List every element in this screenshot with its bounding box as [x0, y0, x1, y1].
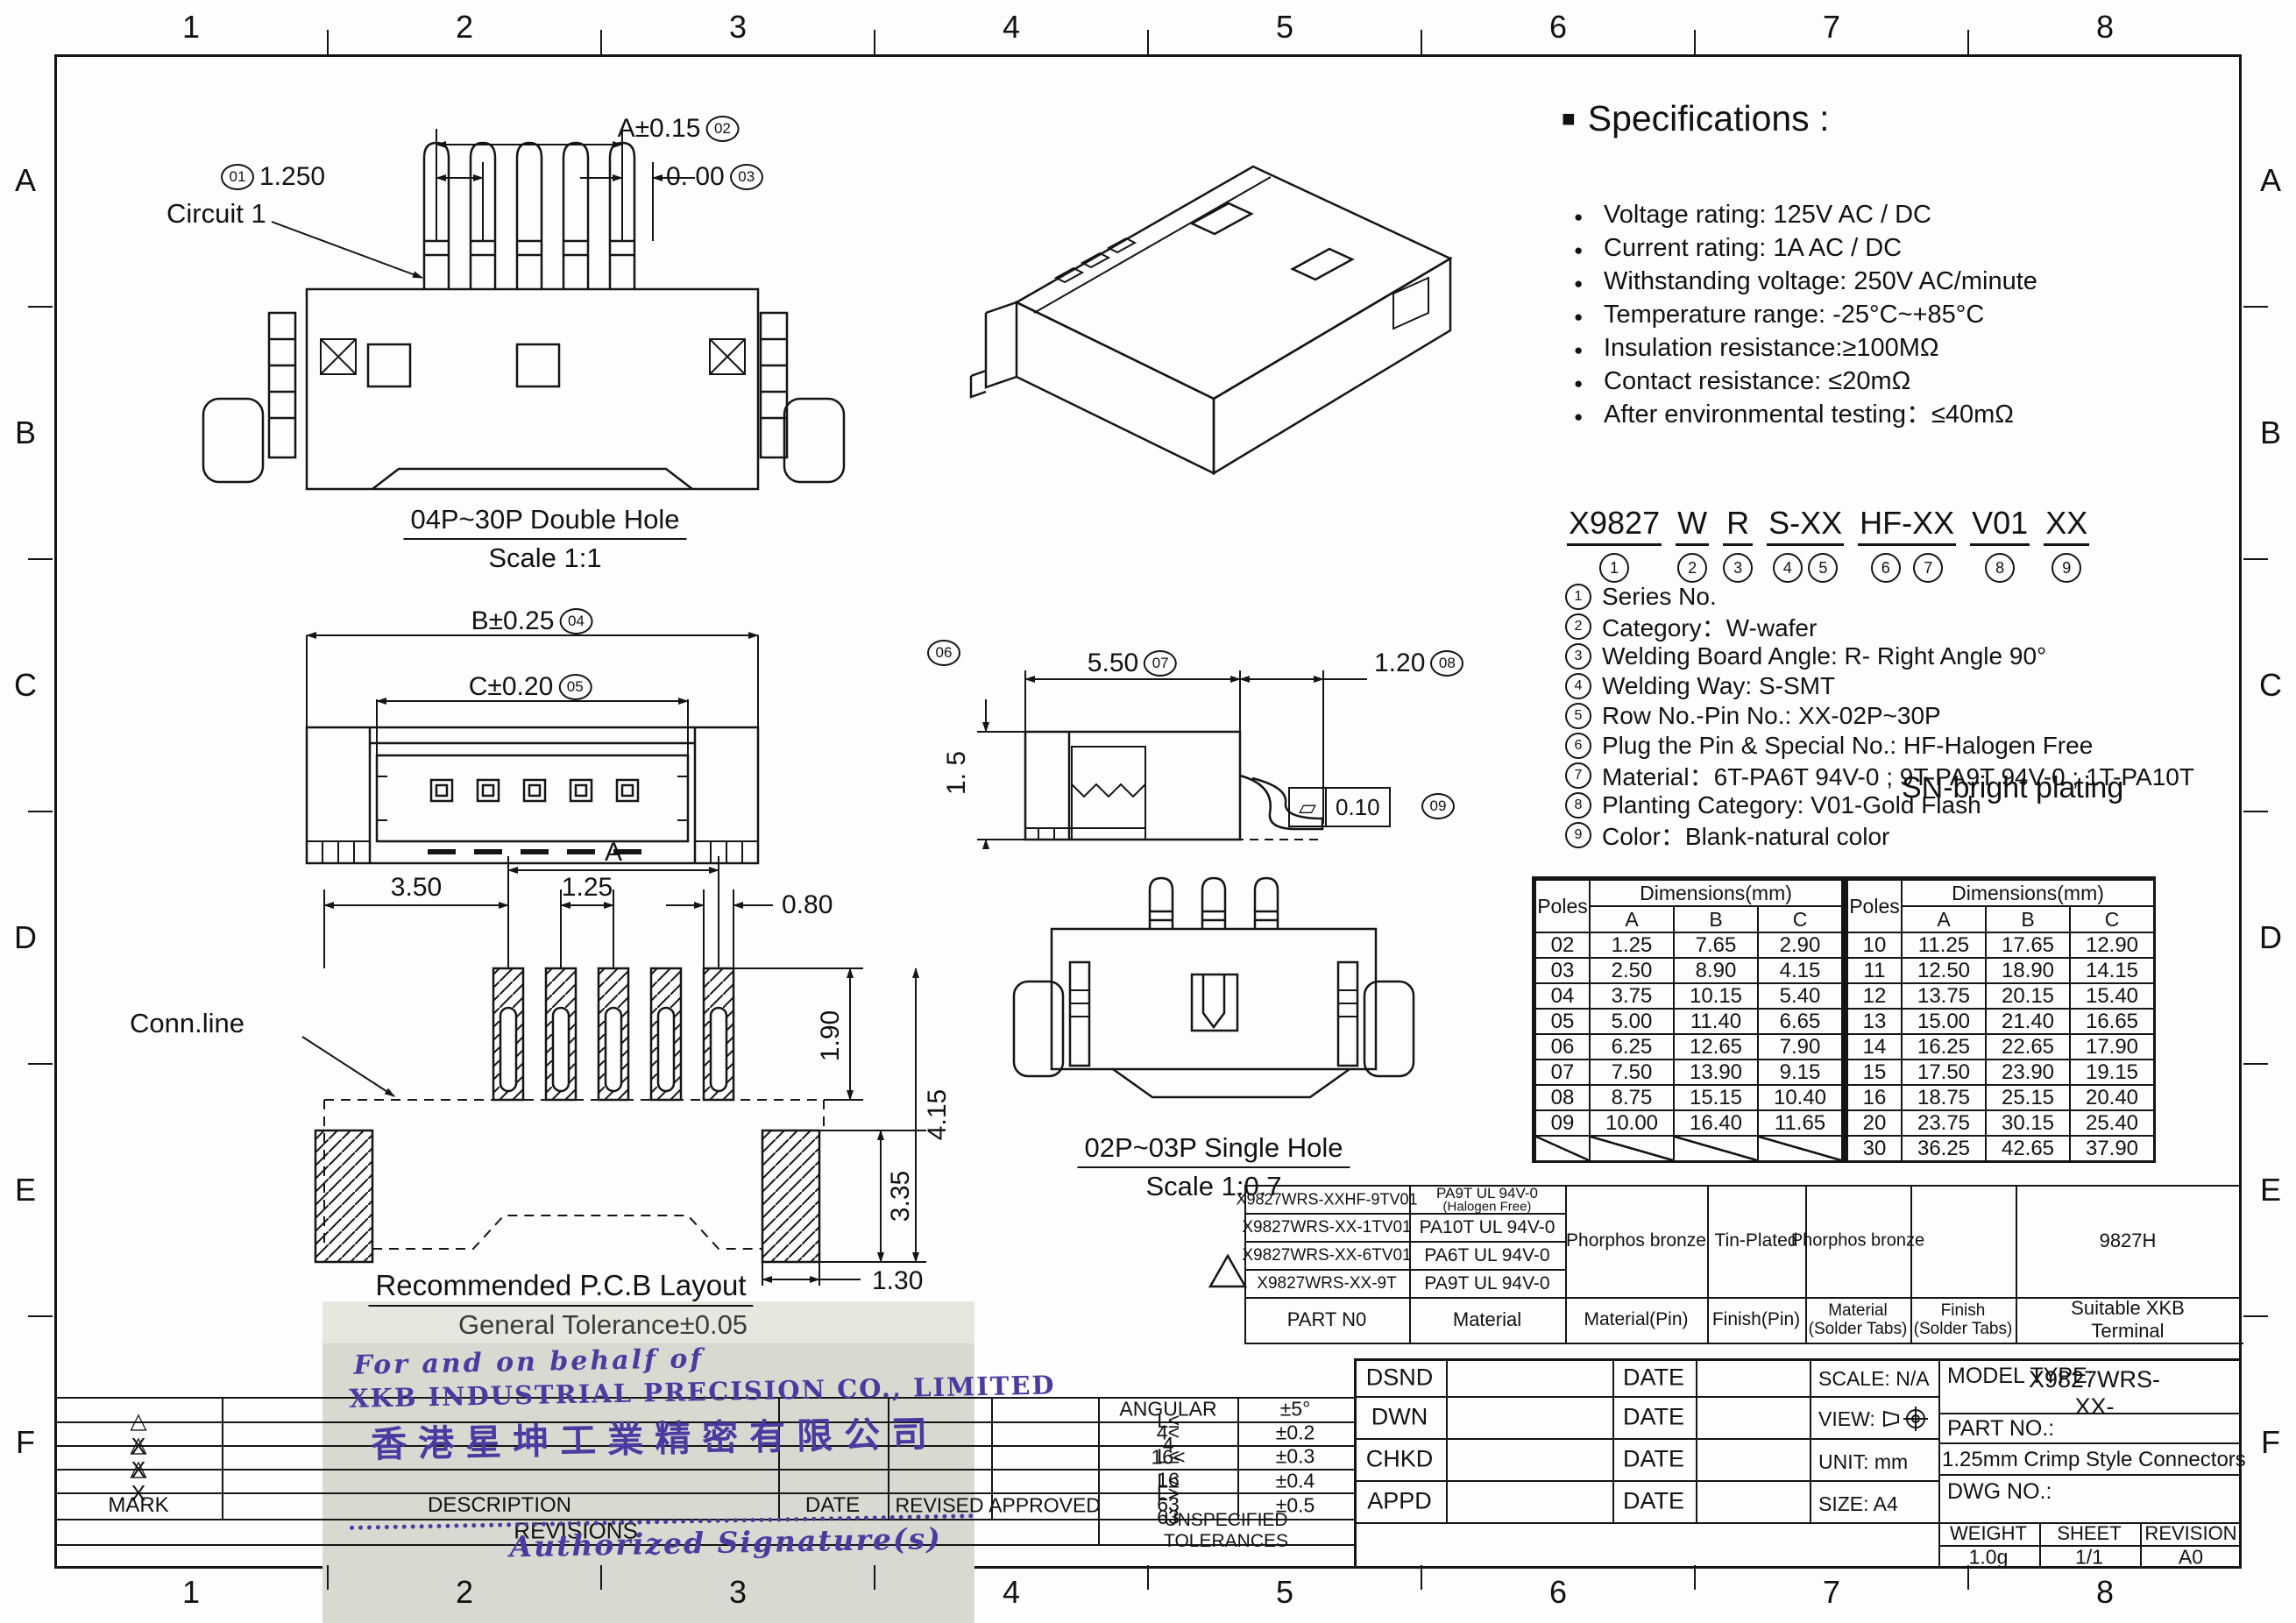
- col-header: Suitable XKB Terminal: [2044, 1297, 2212, 1343]
- grid-row-label: A: [5, 54, 46, 307]
- table-cell: 08: [1534, 1084, 1589, 1109]
- grid-col-label: 7: [1695, 7, 1968, 47]
- view-label: VIEW:: [1818, 1407, 1875, 1431]
- table-cell: 16.65: [2069, 1008, 2153, 1033]
- note-ref-bubble: 8: [1565, 792, 1591, 819]
- specifications-list: Voltage rating: 125V AC / DCCurrent rati…: [1569, 198, 2147, 431]
- pcb-tolerance-note: General Tolerance±0.05: [458, 1309, 748, 1341]
- col-header: B: [1985, 905, 2069, 932]
- code-segment: S-XX 4 5: [1767, 505, 1844, 583]
- col-header: MARK: [108, 1493, 168, 1518]
- table-cell: 25.15: [1985, 1084, 2069, 1109]
- table-cell: 5.40: [1757, 982, 1841, 1008]
- code-segment-text: V01: [1970, 505, 2030, 546]
- col-header: PART N0: [1287, 1308, 1366, 1331]
- part-number-code: X9827 1 W 2 R 3 S-XX 4 5 HF-XX 6 7 V01: [1567, 505, 2089, 583]
- code-segment: R 3: [1723, 505, 1753, 583]
- grid-col-label: 1: [54, 7, 328, 47]
- table-cell: 20.15: [1985, 982, 2069, 1008]
- dim-text: 1.250: [259, 162, 325, 192]
- dim-ref-bubble: 07: [1144, 650, 1177, 677]
- single-hole-caption: 02P~03P Single Hole Scale 1:0.7: [1077, 1132, 1350, 1202]
- divider-line: [1805, 1185, 1807, 1343]
- table-cell: 6.25: [1589, 1033, 1673, 1059]
- table-cell: 16.40: [1673, 1109, 1757, 1135]
- size-value: SIZE: A4: [1818, 1492, 1898, 1516]
- divider-line: [1354, 1480, 1938, 1482]
- table-cell: PA6T UL 94V-0: [1424, 1245, 1549, 1266]
- dim-350-label: 3.50: [391, 873, 442, 903]
- dim-125-label: 1.25: [562, 873, 613, 903]
- divider-line: [1565, 1185, 1567, 1343]
- code-ref-bubble: 2: [1677, 553, 1707, 583]
- table-cell: 04: [1534, 982, 1589, 1008]
- col-header: C: [2069, 905, 2153, 932]
- flatness-icon: ▱: [1290, 789, 1325, 826]
- table-cell: 15.40: [2069, 982, 2153, 1008]
- note-ref-bubble: 9: [1565, 822, 1591, 848]
- table-cell: 10.00: [1589, 1109, 1673, 1135]
- grid-row-label: B: [2250, 307, 2291, 559]
- divider-line: [1938, 1474, 2242, 1476]
- code-segment: X9827 1: [1567, 505, 1662, 583]
- flatness-frame: ▱ 0.10: [1288, 787, 1391, 827]
- table-cell: 18.90: [1985, 957, 2069, 982]
- table-cell: 3.75: [1589, 982, 1673, 1008]
- col-header: APPROVED: [989, 1494, 1101, 1518]
- col-header: Dimensions(mm): [1589, 879, 1841, 905]
- note-ref-bubble: 7: [1565, 762, 1591, 789]
- dim-b-label: B±0.25 04: [471, 606, 593, 636]
- dim-130-label: 1.30: [872, 1266, 923, 1296]
- dim-190-label: 1.90: [816, 1010, 846, 1061]
- date-label: DATE: [1623, 1404, 1684, 1431]
- table-cell: 16.25: [1901, 1033, 1985, 1059]
- grid-row-label: C: [2250, 559, 2291, 811]
- table-cell: 14.15: [2069, 957, 2153, 982]
- table-cell: PA9T UL 94V-0: [1424, 1273, 1549, 1294]
- table-cell: 06: [1534, 1033, 1589, 1059]
- table-cell: 4.15: [1757, 957, 1841, 982]
- col-header: Finish(Pin): [1712, 1309, 1800, 1330]
- code-note: 4Welding Way: S-SMT: [1565, 671, 2194, 701]
- circuit-1-label: Circuit 1: [167, 198, 266, 230]
- divider-line: [1696, 1358, 1697, 1522]
- single-hole-drawing: [1003, 859, 1424, 1130]
- table-cell: 05: [1534, 1008, 1589, 1033]
- caption-title: 04P~30P Double Hole: [403, 504, 686, 540]
- dim-ref-bubble: 05: [558, 674, 592, 700]
- table-cell: 13.75: [1901, 982, 1985, 1008]
- note-text: Color：Blank-natural color: [1602, 818, 1889, 853]
- table-cell: 17.65: [1985, 932, 2069, 957]
- pcb-layout-drawing: [105, 837, 990, 1306]
- tolerance-footer: UNSPECIFIED TOLERANCES: [1164, 1510, 1288, 1552]
- table-cell: 11: [1846, 957, 1901, 982]
- code-note: 2Category：W-wafer: [1565, 612, 2194, 641]
- code-segment-text: X9827: [1567, 505, 1662, 546]
- empty-cell: [1534, 1135, 1589, 1160]
- divider-line: [1354, 1396, 1938, 1398]
- divider-line: [222, 1397, 223, 1519]
- code-segment: V01 8: [1970, 505, 2030, 583]
- dwg-no-label: DWG NO.:: [1947, 1479, 2052, 1505]
- divider-line: [1612, 1358, 1614, 1522]
- dim-text: 5.50: [1088, 648, 1138, 678]
- square-bullet-icon: ■: [1562, 105, 1576, 132]
- code-ref-bubble: 7: [1913, 553, 1943, 583]
- table-cell: 10: [1846, 932, 1901, 957]
- col-header: DESCRIPTION: [428, 1493, 571, 1518]
- dim-ref-bubble: 08: [1430, 650, 1463, 677]
- table-cell: 42.65: [1985, 1135, 2069, 1160]
- table-cell: 37.90: [2069, 1135, 2153, 1160]
- code-ref-bubble: 6: [1871, 553, 1901, 583]
- table-cell: 21.40: [1985, 1008, 2069, 1033]
- code-ref-bubble: 3: [1723, 553, 1753, 583]
- col-header: Poles: [1534, 879, 1589, 932]
- grid-row-label: D: [5, 811, 46, 1064]
- table-cell: 09: [1534, 1109, 1589, 1135]
- flatness-ref: 09: [1421, 793, 1455, 819]
- grid-row-label: F: [2250, 1316, 2291, 1569]
- grid-col-label: 7: [1695, 1572, 1968, 1612]
- code-note: 6Plug the Pin & Special No.: HF-Halogen …: [1565, 731, 2194, 761]
- note-ref-bubble: 2: [1565, 613, 1591, 640]
- date-label: DATE: [1623, 1364, 1684, 1392]
- note-text: Series No.: [1602, 583, 1717, 611]
- ruler-right: ABCDEF: [2250, 54, 2291, 1569]
- divider-line: [1938, 1442, 2242, 1444]
- table-cell: 12.50: [1901, 957, 1985, 982]
- spec-item: After environmental testing：≤40mΩ: [1569, 398, 2147, 431]
- table-cell: 2.50: [1589, 957, 1673, 982]
- divider-line: [1910, 1185, 1912, 1343]
- table-cell: 15: [1846, 1059, 1901, 1084]
- table-cell: 7.65: [1673, 932, 1757, 957]
- third-angle-projection-icon: [1881, 1406, 1935, 1432]
- divider-line: [1244, 1241, 1565, 1243]
- empty-cell: [1589, 1135, 1673, 1160]
- table-cell: 23.90: [1985, 1059, 2069, 1084]
- dim-c-label: C±0.20 05: [469, 672, 592, 702]
- grid-col-label: 3: [601, 1572, 875, 1612]
- ruler-bottom: 12345678: [54, 1572, 2242, 1612]
- dim-zero-label: 0. 00 03: [666, 162, 763, 192]
- note-text: Category：W-wafer: [1602, 609, 1817, 644]
- spec-item: Current rating: 1A AC / DC: [1569, 231, 2147, 265]
- col-header: Material: [1453, 1308, 1521, 1331]
- weight-value: 1.0g: [1969, 1546, 2009, 1570]
- top-view-caption: 04P~30P Double Hole Scale 1:1: [403, 504, 686, 574]
- table-cell: 11.65: [1757, 1109, 1841, 1135]
- table-cell: 10.40: [1757, 1084, 1841, 1109]
- grid-col-label: 6: [1421, 7, 1695, 47]
- code-note: 5Row No.-Pin No.: XX-02P~30P: [1565, 701, 2194, 731]
- weight-label: WEIGHT: [1950, 1522, 2027, 1545]
- divider-line: [1098, 1397, 1100, 1544]
- view-row: VIEW:: [1818, 1406, 1935, 1432]
- date-label: DATE: [1623, 1446, 1684, 1473]
- grid-col-label: 5: [1148, 1572, 1421, 1612]
- revision-value: A0: [2179, 1546, 2203, 1570]
- model-type-value: X9827WRS-XX-: [2029, 1366, 2160, 1421]
- code-ref-bubble: 1: [1599, 553, 1629, 583]
- code-ref-bubble: 4: [1773, 553, 1803, 583]
- col-header: Poles: [1846, 879, 1901, 932]
- table-cell: 7.90: [1757, 1033, 1841, 1059]
- grid-row-label: D: [2250, 811, 2291, 1064]
- specifications-title: ■ Specifications :: [1562, 98, 1829, 139]
- role-label: CHKD: [1366, 1446, 1434, 1473]
- table-cell: 13.90: [1673, 1059, 1757, 1084]
- spec-item: Temperature range: -25°C~+85°C: [1569, 298, 2147, 331]
- table-cell: 20: [1846, 1109, 1901, 1135]
- empty-cell: [1757, 1135, 1841, 1160]
- caption-scale: Scale 1:0.7: [1077, 1171, 1350, 1202]
- ruler-top: 12345678: [54, 7, 2242, 47]
- table-cell: 22.65: [1985, 1033, 2069, 1059]
- table-cell: 9827H: [2100, 1230, 2157, 1252]
- spec-item: Withstanding voltage: 250V AC/minute: [1569, 265, 2147, 298]
- note-text: Welding Way: S-SMT: [1602, 672, 1835, 700]
- dim-ref-bubble: 04: [559, 608, 592, 634]
- code-ref-bubble: 8: [1985, 553, 2015, 583]
- table-cell: 16: [1846, 1084, 1901, 1109]
- table-cell: 12.90: [2069, 932, 2153, 957]
- dim-ref-bubble: 02: [705, 116, 739, 142]
- code-segment-text: R: [1723, 505, 1753, 546]
- caption-title: Recommended P.C.B Layout: [368, 1269, 753, 1307]
- table-cell: 03: [1534, 957, 1589, 982]
- tolerance-value: ±0.4: [1276, 1470, 1315, 1493]
- code-segment: XX 9: [2044, 505, 2089, 583]
- table-cell: 11.25: [1901, 932, 1985, 957]
- code-segment: W 2: [1676, 505, 1709, 583]
- specifications-title-text: Specifications :: [1588, 98, 1830, 139]
- table-cell: X9827WRS-XX-6TV01: [1242, 1246, 1411, 1265]
- table-cell: 20.40: [2069, 1084, 2153, 1109]
- dim-span-label: A±0.15 02: [618, 114, 740, 144]
- table-cell: 6.65: [1757, 1008, 1841, 1033]
- table-cell: 13: [1846, 1008, 1901, 1033]
- dim-text: A±0.15: [618, 114, 701, 144]
- col-header: A: [1589, 905, 1673, 932]
- note-ref-bubble: 4: [1565, 673, 1591, 699]
- grid-col-label: 6: [1421, 1572, 1695, 1612]
- divider-line: [1244, 1343, 2243, 1344]
- dim-120-label: 1.20 08: [1374, 648, 1463, 678]
- table-cell: 23.75: [1901, 1109, 1985, 1135]
- pcb-caption: Recommended P.C.B Layout: [368, 1269, 753, 1307]
- unit-value: UNIT: mm: [1818, 1450, 1908, 1474]
- grid-row-label: F: [5, 1316, 46, 1569]
- note-ref-bubble: 3: [1565, 643, 1591, 670]
- part-code-notes: 1Series No. 2Category：W-wafer 3Welding B…: [1565, 582, 2194, 850]
- col-header: Dimensions(mm): [1901, 879, 2153, 905]
- table-cell: 8.90: [1673, 957, 1757, 982]
- table-cell: 17.50: [1901, 1059, 1985, 1084]
- note-text: Plug the Pin & Special No.: HF-Halogen F…: [1602, 732, 2093, 760]
- code-note: 1Series No.: [1565, 582, 2194, 612]
- spec-item: Contact resistance: ≤20mΩ: [1569, 365, 2147, 398]
- dim-pitch-label: 01 1.250: [221, 162, 325, 192]
- col-header: Finish (Solder Tabs): [1914, 1301, 2013, 1338]
- grid-col-label: 2: [328, 1572, 601, 1612]
- table-cell: 18.75: [1901, 1084, 1985, 1109]
- dim-text: B±0.25: [471, 606, 555, 636]
- table-cell: Phorphos bronze: [1791, 1231, 1924, 1251]
- divider-line: [2140, 1522, 2142, 1569]
- part-no-label: PART NO.:: [1947, 1416, 2054, 1442]
- note-ref-bubble: 1: [1565, 584, 1591, 610]
- divider-line: [2039, 1522, 2041, 1569]
- empty-cell: [1673, 1135, 1757, 1160]
- table-cell: 11.40: [1673, 1008, 1757, 1033]
- table-cell: 17.90: [2069, 1033, 2153, 1059]
- dim-080-label: 0.80: [782, 890, 833, 920]
- divider-line: [1707, 1185, 1709, 1343]
- front-view-drawing: [175, 605, 841, 868]
- table-cell: 30: [1846, 1135, 1901, 1160]
- tolerance-value: ±5°: [1280, 1398, 1311, 1421]
- dim-550-label: 5.50 07: [1088, 648, 1177, 678]
- grid-col-label: 8: [1968, 7, 2242, 47]
- dim-a-label: A: [605, 838, 622, 868]
- sn-plating-note: SN-bright plating: [1902, 771, 2123, 805]
- drawing-sheet: 12345678 12345678 ABCDEF ABCDEF: [0, 0, 2296, 1623]
- col-header: Material(Pin): [1584, 1309, 1688, 1330]
- sheet-value: 1/1: [2075, 1546, 2103, 1570]
- spec-item: Insulation resistance:≥100MΩ: [1569, 331, 2147, 365]
- divider-line: [1354, 1438, 1938, 1440]
- dim-ref-bubble: 03: [730, 164, 763, 190]
- grid-row-label: C: [5, 559, 46, 811]
- dim-ref-bubble: 01: [221, 164, 254, 190]
- code-segment-text: XX: [2044, 505, 2089, 546]
- table-cell: 15.00: [1901, 1008, 1985, 1033]
- note-ref-bubble: 6: [1565, 733, 1591, 759]
- conn-line-label: Conn.line: [130, 1008, 244, 1039]
- dim-15-label: 1. 5: [942, 751, 972, 795]
- divider-line: [1237, 1397, 1239, 1519]
- grid-row-label: E: [2250, 1064, 2291, 1316]
- table-cell: 9.15: [1757, 1059, 1841, 1084]
- code-note: 9Color：Blank-natural color: [1565, 820, 2194, 850]
- table-cell: 07: [1534, 1059, 1589, 1084]
- code-ref-bubble: 9: [2052, 553, 2081, 583]
- divider-line: [2016, 1185, 2017, 1343]
- table-cell: 8.75: [1589, 1084, 1673, 1109]
- role-label: APPD: [1367, 1488, 1432, 1515]
- grid-row-label: E: [5, 1064, 46, 1316]
- table-cell: 15.15: [1673, 1084, 1757, 1109]
- dim-text: C±0.20: [469, 672, 554, 702]
- table-cell: 10.15: [1673, 982, 1757, 1008]
- divider-line: [1810, 1358, 1811, 1522]
- code-note: 3Welding Board Angle: R- Right Angle 90°: [1565, 641, 2194, 671]
- dim-text: 0. 00: [666, 162, 725, 192]
- sheet-label: SHEET: [2057, 1522, 2121, 1545]
- tolerance-value: ±0.2: [1276, 1421, 1315, 1445]
- spec-item: Voltage rating: 125V AC / DC: [1569, 198, 2147, 231]
- table-cell: 30.15: [1985, 1109, 2069, 1135]
- tolerance-value: ±0.3: [1276, 1445, 1315, 1469]
- grid-col-label: 2: [328, 7, 601, 47]
- divider-line: [1244, 1185, 2242, 1187]
- table-cell: 36.25: [1901, 1135, 1985, 1160]
- divider-line: [1244, 1269, 1565, 1271]
- dim-ref-bubble: 09: [1421, 793, 1455, 819]
- col-header: A: [1901, 905, 1985, 932]
- table-cell: Tin-Plated: [1715, 1230, 1798, 1251]
- date-label: DATE: [1623, 1488, 1684, 1515]
- grid-row-label: A: [2250, 54, 2291, 307]
- col-header: DATE: [805, 1493, 860, 1518]
- table-cell: 19.15: [2069, 1059, 2153, 1084]
- note-ref-bubble: 5: [1565, 703, 1591, 729]
- table-cell: X9827WRS-XX-1TV01: [1242, 1218, 1411, 1237]
- flatness-value: 0.10: [1325, 789, 1389, 826]
- grid-row-label: B: [5, 307, 46, 559]
- ruler-left: ABCDEF: [5, 54, 46, 1569]
- code-segment: HF-XX 6 7: [1858, 505, 1956, 583]
- grid-col-label: 4: [875, 1572, 1148, 1612]
- code-segment-text: W: [1676, 505, 1709, 546]
- table-cell: (Halogen Free): [1443, 1200, 1532, 1215]
- poles-table-left: Poles Dimensions(mm) A B C 021.257.652.9…: [1532, 876, 1844, 1163]
- note-text: Row No.-Pin No.: XX-02P~30P: [1602, 702, 1941, 730]
- table-cell: 14: [1846, 1033, 1901, 1059]
- table-cell: 7.50: [1589, 1059, 1673, 1084]
- side-ref06-label: 06: [927, 640, 960, 666]
- table-cell: 12.65: [1673, 1033, 1757, 1059]
- dim-335-label: 3.35: [886, 1171, 916, 1222]
- dim-text: 1.20: [1374, 648, 1425, 678]
- grid-col-label: 8: [1968, 1572, 2242, 1612]
- divider-line: [1938, 1358, 1940, 1569]
- code-ref-bubble: 5: [1808, 553, 1838, 583]
- dim-415-label: 4.15: [923, 1089, 953, 1140]
- caption-title: 02P~03P Single Hole: [1077, 1132, 1350, 1168]
- isometric-view-drawing: [903, 83, 1463, 530]
- stamp-company-zh: 香港星坤工業精密有限公司: [371, 1404, 939, 1467]
- poles-table-right: Poles Dimensions(mm) A B C 1011.2517.651…: [1844, 876, 2156, 1163]
- table-cell: 2.90: [1757, 932, 1841, 957]
- table-cell: 5.00: [1589, 1008, 1673, 1033]
- table-cell: X9827WRS-XX-9T: [1257, 1274, 1396, 1293]
- code-segment-text: S-XX: [1767, 505, 1844, 546]
- table-cell: 12: [1846, 982, 1901, 1008]
- code-segment-text: HF-XX: [1858, 505, 1956, 546]
- scale-value: SCALE: N/A: [1818, 1367, 1930, 1391]
- table-cell: 25.40: [2069, 1109, 2153, 1135]
- table-cell: 1.25: [1589, 932, 1673, 957]
- revision-label: REVISION: [2144, 1522, 2236, 1545]
- part-name: 1.25mm Crimp Style Connectors: [1942, 1448, 2246, 1472]
- grid-col-label: 4: [875, 7, 1148, 47]
- caption-scale: Scale 1:1: [403, 542, 686, 574]
- divider-line: [2240, 1185, 2242, 1343]
- role-label: DSND: [1366, 1364, 1434, 1392]
- table-cell: 02: [1534, 932, 1589, 957]
- dim-ref-bubble: 06: [927, 640, 960, 666]
- table-cell: PA10T UL 94V-0: [1420, 1217, 1555, 1238]
- divider-line: [1446, 1358, 1448, 1522]
- col-header: C: [1757, 905, 1841, 932]
- col-header: Material (Solder Tabs): [1809, 1301, 1908, 1338]
- role-label: DWN: [1371, 1404, 1428, 1431]
